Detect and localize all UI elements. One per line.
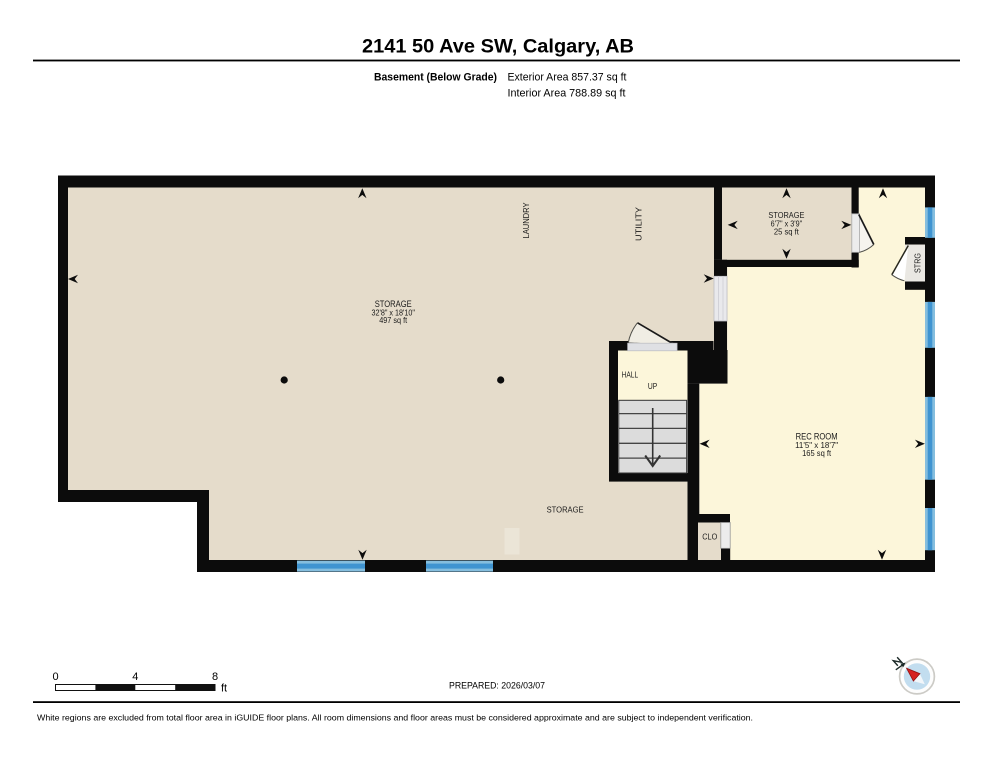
svg-text:497 sq ft: 497 sq ft xyxy=(379,315,408,325)
svg-text:Interior Area 788.89 sq ft: Interior Area 788.89 sq ft xyxy=(508,88,626,100)
svg-text:Basement (Below Grade): Basement (Below Grade) xyxy=(374,72,497,84)
svg-text:PREPARED: 2026/03/07: PREPARED: 2026/03/07 xyxy=(449,681,545,692)
svg-text:UTILITY: UTILITY xyxy=(634,206,644,241)
svg-text:UP: UP xyxy=(648,382,657,391)
svg-text:White regions are excluded fro: White regions are excluded from total fl… xyxy=(37,713,753,723)
svg-text:8: 8 xyxy=(212,671,218,683)
svg-text:0: 0 xyxy=(52,671,58,683)
svg-text:25 sq ft: 25 sq ft xyxy=(774,227,800,236)
svg-text:CLO: CLO xyxy=(702,533,717,542)
svg-text:LAUNDRY: LAUNDRY xyxy=(521,202,531,238)
svg-text:STORAGE: STORAGE xyxy=(547,506,584,515)
svg-text:HALL: HALL xyxy=(622,371,639,380)
svg-text:Exterior Area 857.37 sq ft: Exterior Area 857.37 sq ft xyxy=(508,72,627,84)
svg-text:165 sq ft: 165 sq ft xyxy=(802,448,832,458)
svg-text:2141 50 Ave SW, Calgary, AB: 2141 50 Ave SW, Calgary, AB xyxy=(362,36,634,58)
svg-text:STRG: STRG xyxy=(913,253,923,273)
svg-text:4: 4 xyxy=(132,671,138,683)
svg-text:ft: ft xyxy=(221,683,227,695)
